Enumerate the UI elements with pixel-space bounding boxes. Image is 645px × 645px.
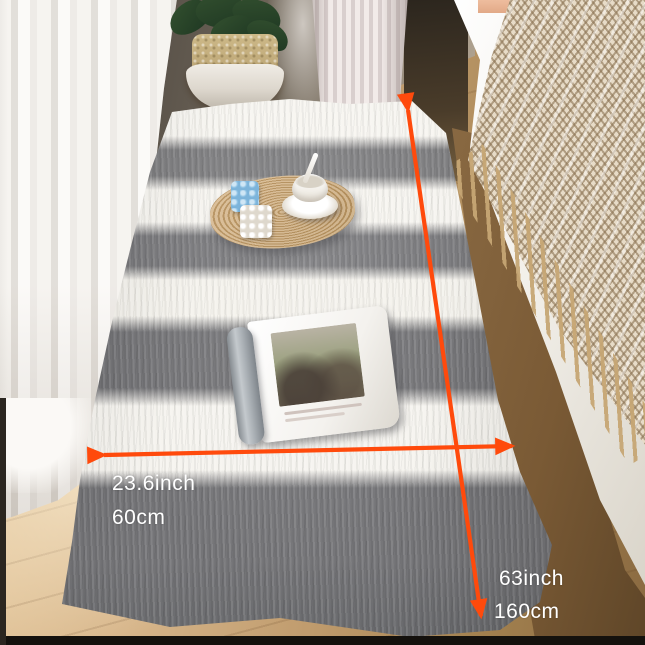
product-photo-rug-bedroom: 23.6inch 60cm 63inch 160cm <box>0 0 645 645</box>
length-label-inch: 63inch <box>499 567 564 591</box>
length-label-cm: 160cm <box>494 600 560 624</box>
width-label-cm: 60cm <box>112 506 165 530</box>
width-arrow <box>104 446 512 455</box>
length-arrow <box>408 110 481 616</box>
dimension-arrows-overlay <box>0 0 645 645</box>
width-label-inch: 23.6inch <box>112 472 195 496</box>
